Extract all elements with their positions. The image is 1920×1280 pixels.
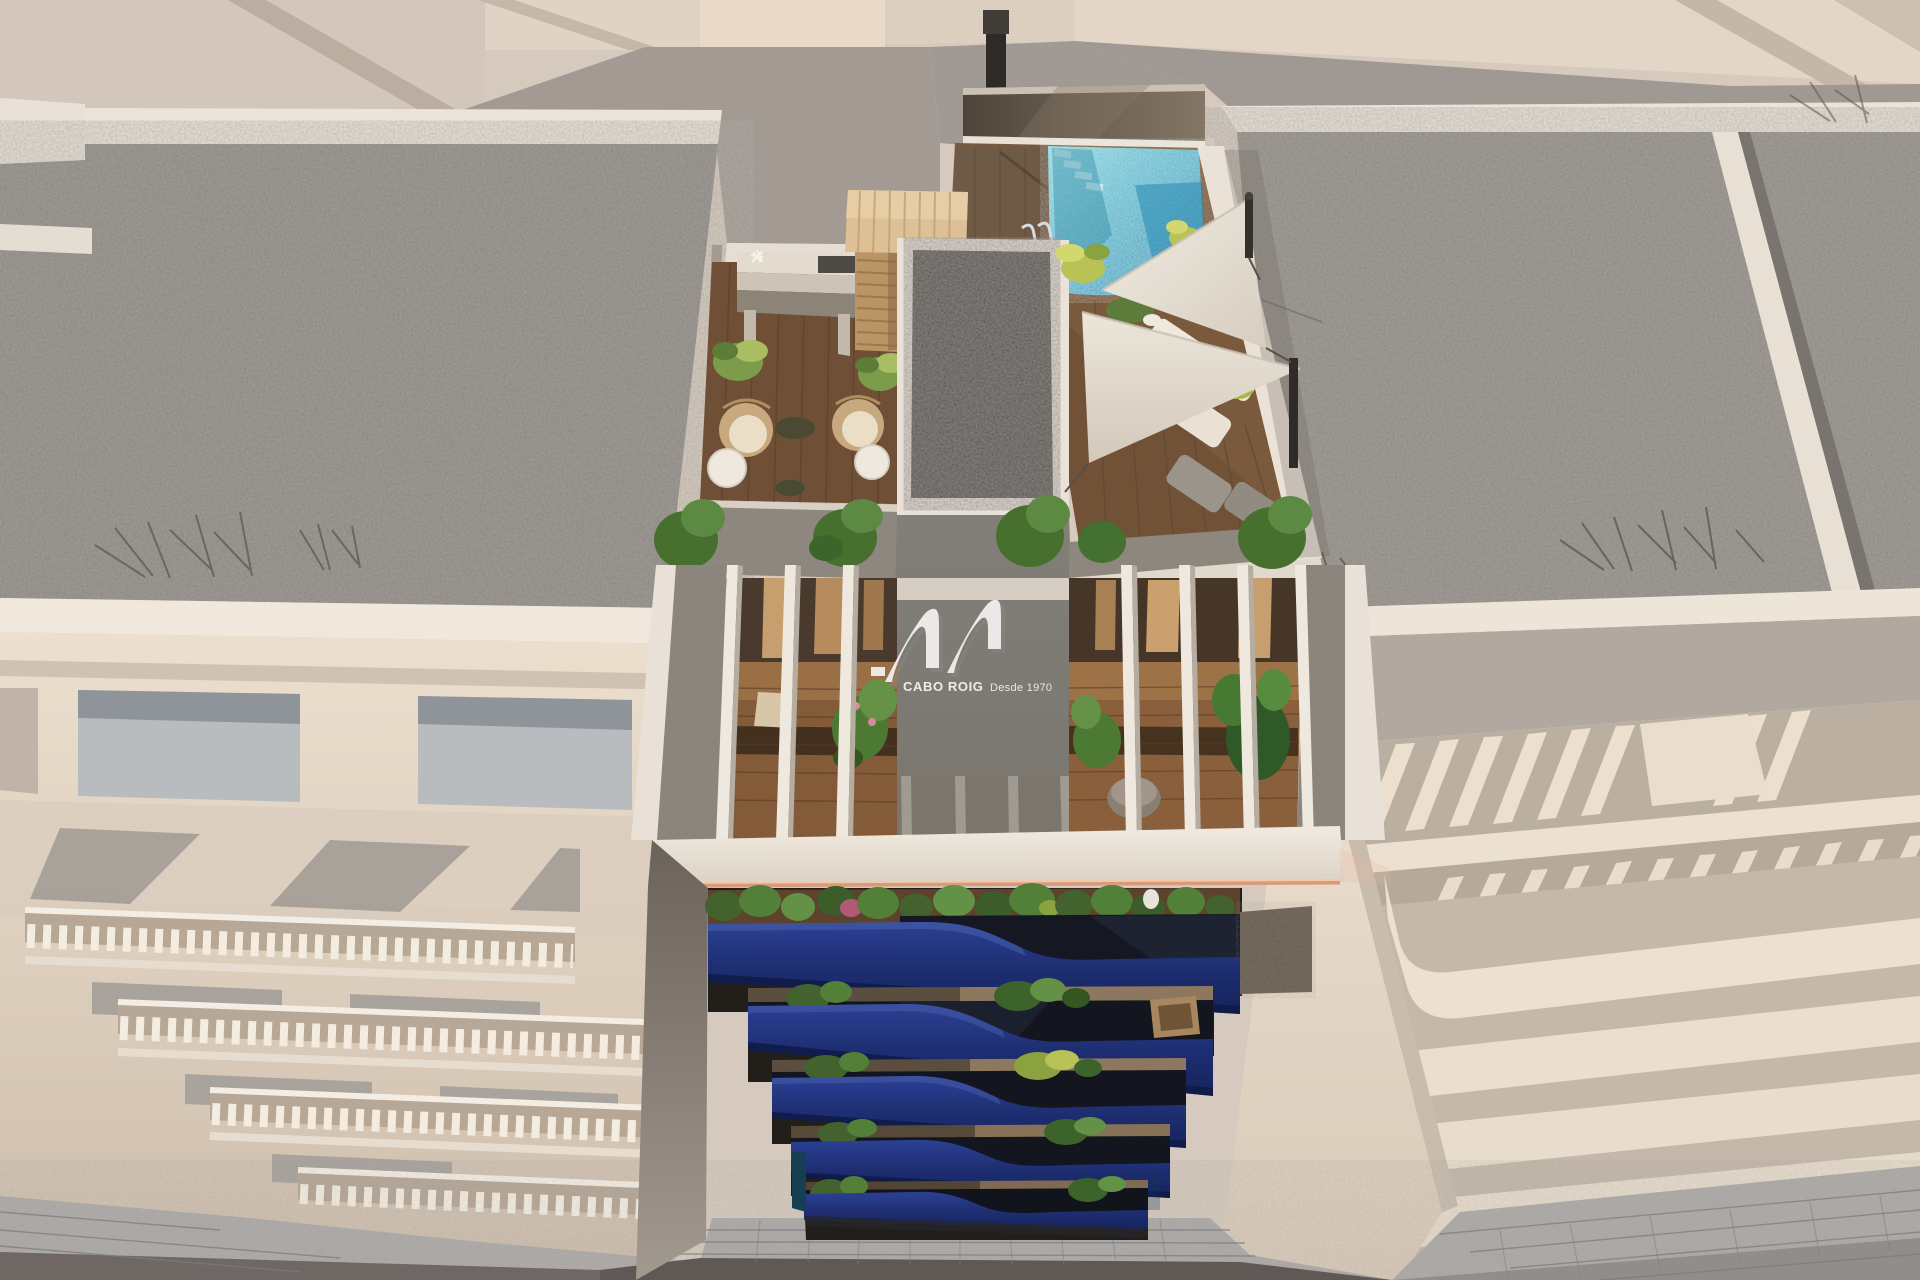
svg-text:CABO ROIG: CABO ROIG — [903, 679, 984, 694]
svg-text:Desde 1970: Desde 1970 — [990, 682, 1052, 694]
